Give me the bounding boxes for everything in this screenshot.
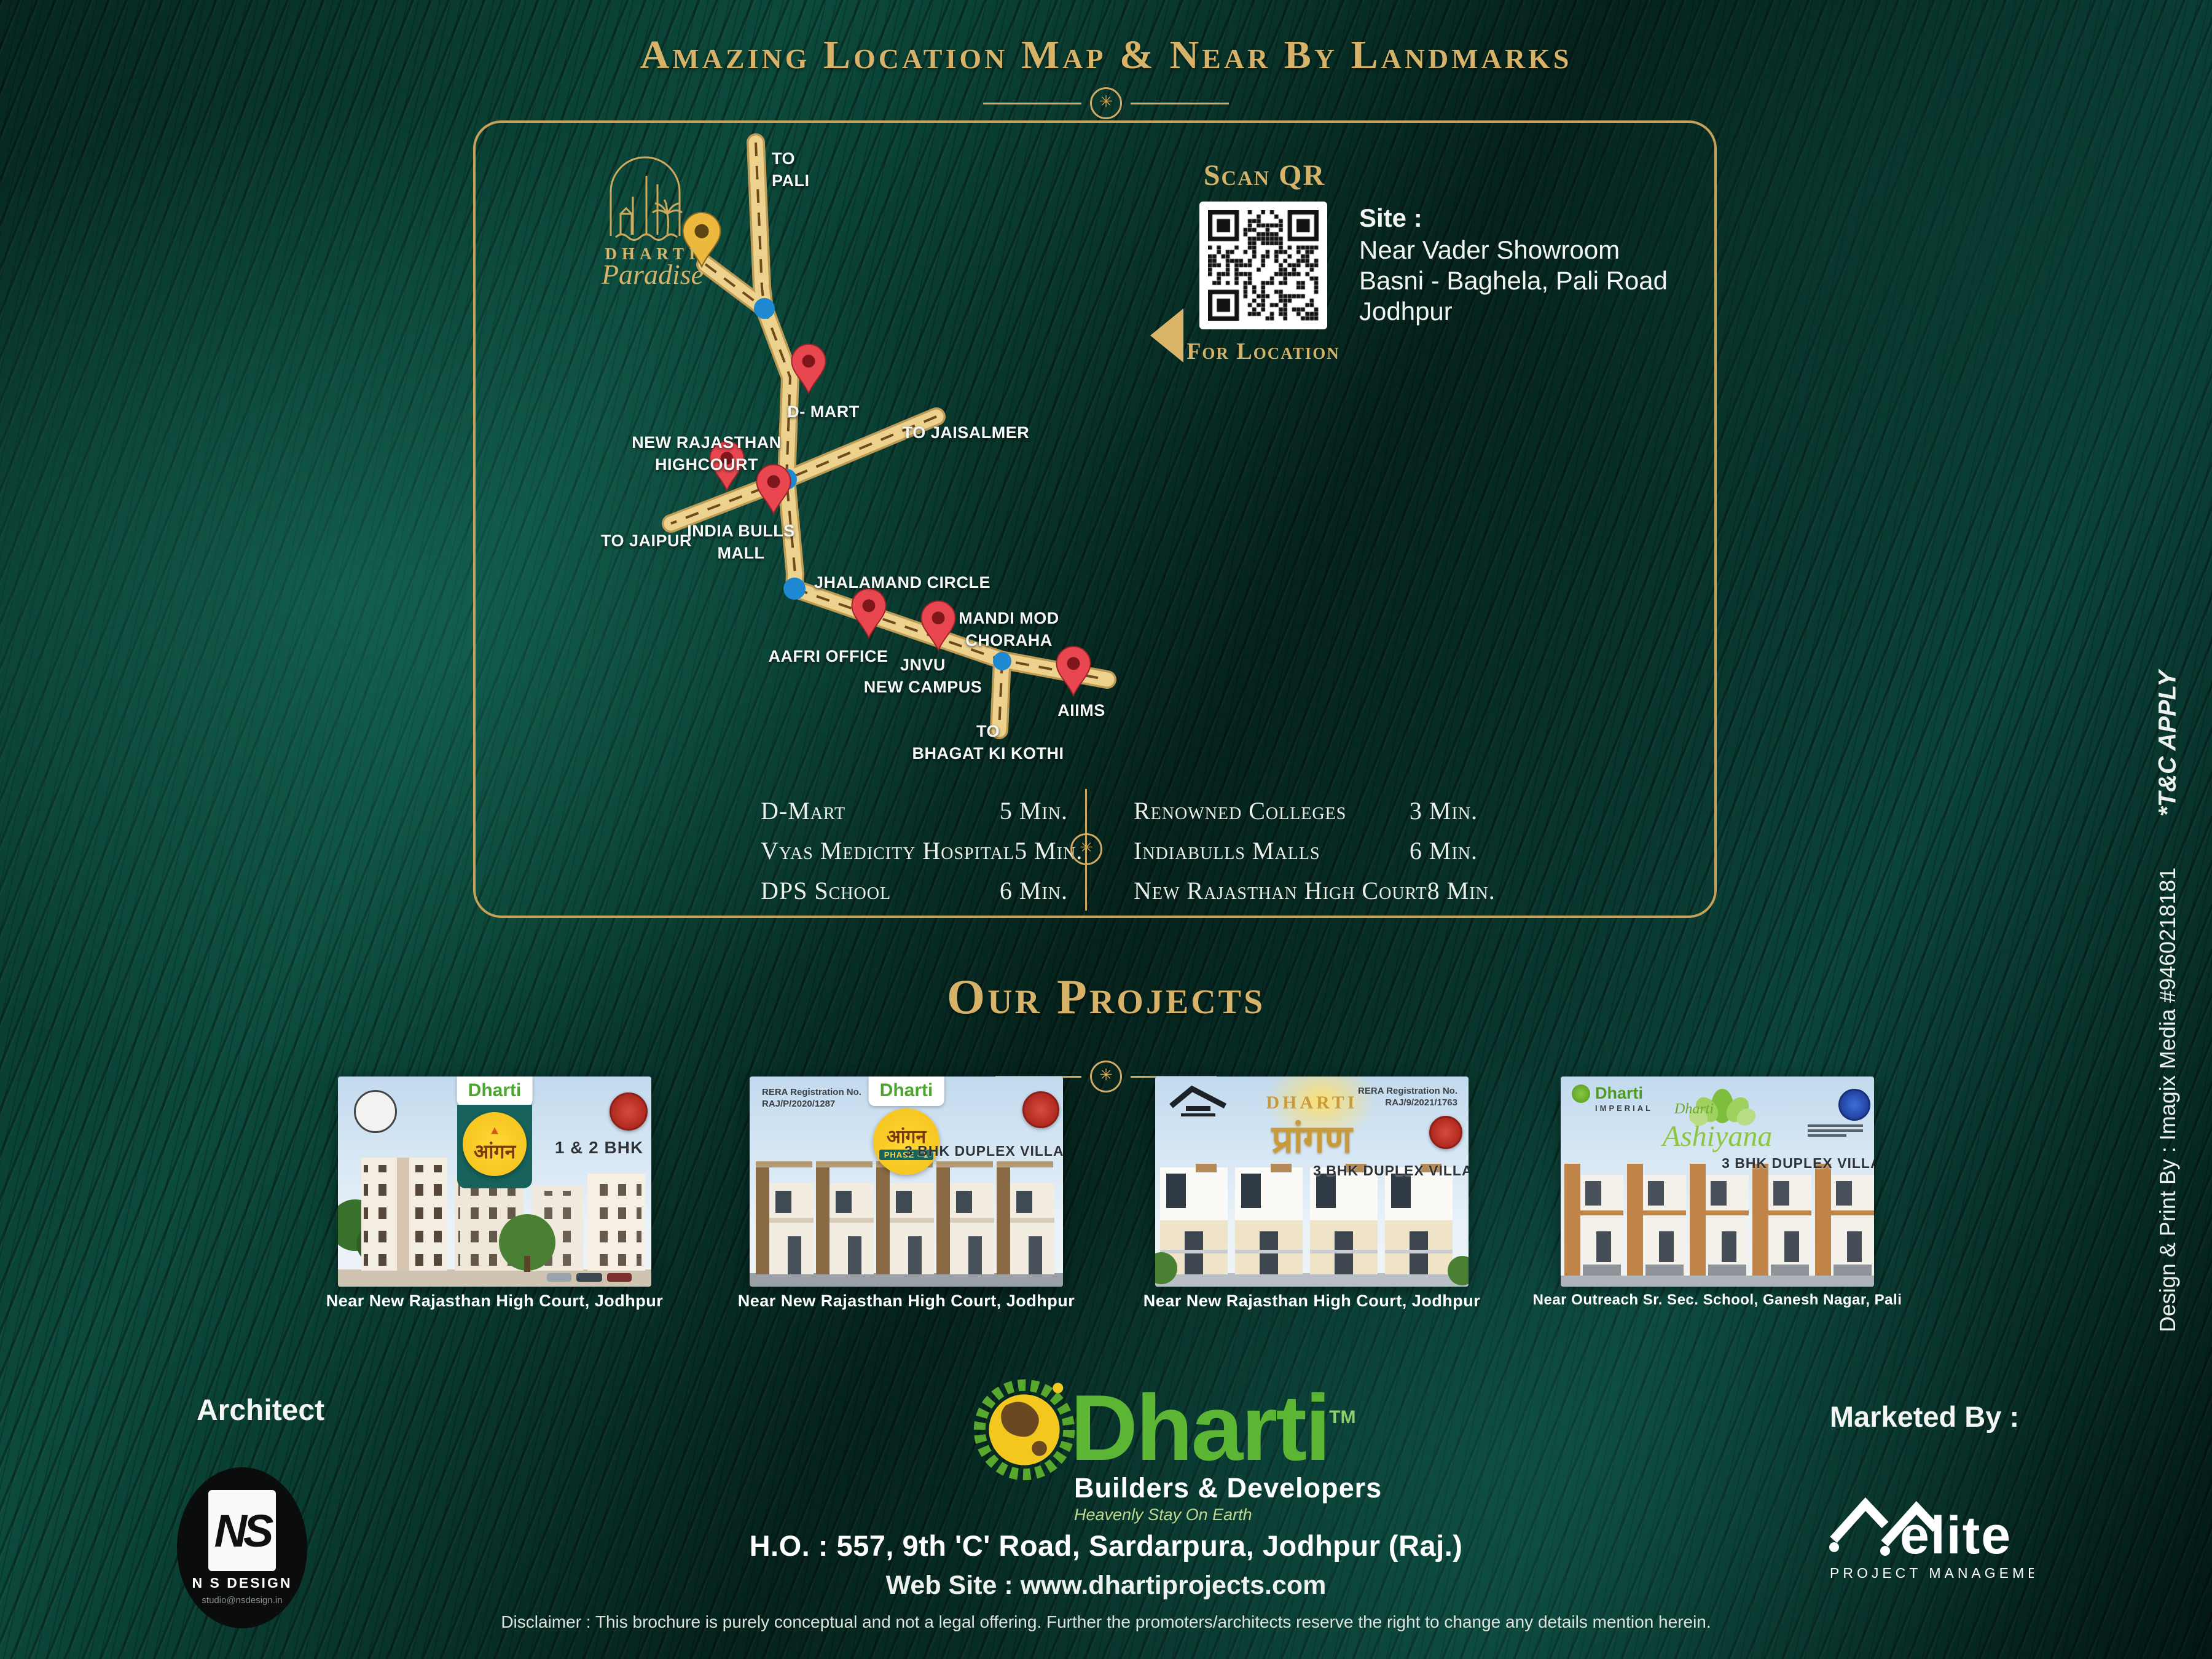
site-line: Near Vader Showroom — [1359, 235, 1668, 265]
project-card-ashiyana: Dharti IMPERIAL Dharti Ashiyana 3 BHK DU… — [1561, 1077, 1874, 1287]
map-label-to-jaisalmer: TO JAISALMER — [903, 422, 1030, 444]
landmark-list-right: Renowned Colleges 3 Min. Indiabulls Mall… — [1134, 796, 1478, 916]
landmark-row: Renowned Colleges 3 Min. — [1134, 796, 1478, 821]
landmark-row: D-Mart 5 Min. — [761, 796, 1068, 821]
card-type: 3 BHK DUPLEX VILLAS — [904, 1143, 1063, 1159]
approval-seal-icon — [354, 1090, 397, 1133]
elite-logo: elite PROJECT MANAGEMENT — [1825, 1480, 2034, 1587]
landmark-time: 3 Min. — [1410, 796, 1478, 821]
tc-apply-note: *T&C APPLY — [2154, 670, 2182, 817]
rera-registration: RERA Registration No. RAJ/P/2020/1287 — [762, 1086, 861, 1110]
star-ornament-icon: ✳ — [1090, 1061, 1122, 1092]
map-label-india-bulls-mall: INDIA BULLS MALL — [687, 520, 795, 564]
ashiyana-brand: Dharti — [1674, 1101, 1714, 1118]
landmark-name: DPS School — [761, 876, 891, 901]
landmark-time: 6 Min. — [1410, 836, 1478, 861]
jda-seal-icon — [610, 1092, 648, 1131]
head-office-address: H.O. : 557, 9th 'C' Road, Sardarpura, Jo… — [750, 1529, 1463, 1563]
card-type: 1 & 2 BHK — [555, 1138, 643, 1158]
dharti-globe-icon — [972, 1378, 1077, 1482]
map-label-bhagat-ki-kothi: TO BHAGAT KI KOTHI — [912, 720, 1064, 764]
card-brand: DHARTI — [1266, 1092, 1358, 1113]
landmark-name: Indiabulls Malls — [1134, 836, 1320, 861]
rera-lines — [1808, 1122, 1863, 1139]
landmark-name: Renowned Colleges — [1134, 796, 1346, 821]
aangan-badge: आंगन PHASE - 1 — [873, 1108, 939, 1175]
brochure-page: Amazing Location Map & Near By Landmarks… — [0, 0, 2212, 1659]
dharti-imperial-logo: Dharti — [1572, 1084, 1643, 1103]
map-label-highcourt: NEW RAJASTHAN HIGHCOURT — [632, 431, 782, 476]
ns-design-logo: NS N S DESIGN studio@nsdesign.in — [177, 1467, 307, 1628]
approval-seal-icon — [1838, 1089, 1870, 1121]
site-heading: Site : — [1359, 203, 1668, 233]
ns-monogram: NS — [208, 1490, 276, 1571]
map-label-aiims: AIIMS — [1057, 699, 1105, 721]
dharti-logo-tagline: Heavenly Stay On Earth — [1074, 1505, 1252, 1524]
elite-sub: PROJECT MANAGEMENT — [1830, 1565, 2034, 1581]
aangan-badge: ▲ आंगन — [463, 1112, 527, 1176]
site-line: Jodhpur — [1359, 296, 1668, 327]
print-credit: Design & Print By : Imagix Media #946021… — [2155, 868, 2181, 1332]
card-caption: Near Outreach Sr. Sec. School, Ganesh Na… — [1533, 1292, 1902, 1309]
jda-seal-icon — [1022, 1091, 1059, 1128]
card-type: 3 BHK DUPLEX VILLAS — [1722, 1155, 1874, 1172]
disclaimer-text: Disclaimer : This brochure is purely con… — [501, 1612, 1711, 1632]
landmark-time: 8 Min. — [1427, 876, 1496, 901]
palm-ornament-icon: ✳ — [1070, 833, 1102, 865]
pin-aafri-office — [852, 589, 885, 638]
projects-heading: Our Projects — [947, 970, 1265, 1026]
elite-wordmark: elite — [1900, 1506, 2012, 1565]
project-card-aangan-villas: RERA Registration No. RAJ/P/2020/1287 Dh… — [750, 1077, 1063, 1287]
site-address-block: Site : Near Vader Showroom Basni - Baghe… — [1359, 203, 1668, 327]
dharti-globe-icon — [1572, 1084, 1590, 1103]
map-label-jnvu: JNVU NEW CAMPUS — [864, 654, 982, 698]
marketed-by-label: Marketed By : — [1830, 1400, 2019, 1433]
landmark-row: Indiabulls Malls 6 Min. — [1134, 836, 1478, 861]
card-caption: Near New Rajasthan High Court, Jodhpur — [1143, 1292, 1481, 1311]
rera-registration: RERA Registration No. RAJ/9/2021/1763 — [1358, 1085, 1457, 1108]
dharti-paradise-logo-icon — [611, 157, 682, 240]
landmark-row: New Rajasthan High Court 8 Min. — [1134, 876, 1478, 901]
card-brand: Dharti — [457, 1077, 533, 1106]
map-label-to-jaipur: TO JAIPUR — [601, 530, 692, 552]
scan-qr-label: Scan QR — [1204, 159, 1325, 192]
builder-logo-icon — [1167, 1085, 1226, 1123]
landmark-list-left: D-Mart 5 Min. Vyas Medicity Hospital 5 M… — [761, 796, 1068, 916]
card-brand: Dharti — [869, 1077, 944, 1106]
imperial-label: IMPERIAL — [1595, 1104, 1653, 1113]
qr-code-canvas — [1208, 210, 1319, 321]
map-label-to-pali: TO PALI — [772, 147, 810, 192]
landmark-name: D-Mart — [761, 796, 845, 821]
landmark-name: Vyas Medicity Hospital — [761, 836, 1014, 861]
project-card-prangan: DHARTI प्रांगण RERA Registration No. RAJ… — [1155, 1077, 1469, 1287]
dharti-logo-wordmark: DhartiTM — [1070, 1371, 1355, 1474]
qr-arrow-icon — [1150, 308, 1183, 363]
arrow-up-icon: ▲ — [488, 1124, 501, 1138]
landmark-row: DPS School 6 Min. — [761, 876, 1068, 901]
landmark-name: New Rajasthan High Court — [1134, 876, 1427, 901]
qr-code — [1199, 202, 1327, 329]
card-caption: Near New Rajasthan High Court, Jodhpur — [738, 1292, 1075, 1311]
paradise-logo-name: Paradise — [602, 258, 704, 291]
map-label-mandi-mod: MANDI MOD CHORAHA — [959, 607, 1059, 651]
card-caption: Near New Rajasthan High Court, Jodhpur — [326, 1292, 664, 1311]
map-label-d-mart: D- MART — [787, 401, 859, 423]
website-link[interactable]: Web Site : www.dhartiprojects.com — [886, 1571, 1327, 1601]
landmark-time: 6 Min. — [1000, 876, 1068, 901]
jda-seal-icon — [1429, 1116, 1462, 1149]
architect-label: Architect — [197, 1394, 324, 1427]
prangan-badge: प्रांगण — [1271, 1112, 1352, 1164]
card-type: 3 BHK DUPLEX VILLAS — [1313, 1163, 1469, 1179]
ashiyana-name: Ashiyana — [1663, 1120, 1773, 1153]
landmark-time: 5 Min. — [1000, 796, 1068, 821]
for-location-label: For Location — [1186, 338, 1340, 365]
landmark-row: Vyas Medicity Hospital 5 Min. — [761, 836, 1068, 861]
site-line: Basni - Baghela, Pali Road — [1359, 265, 1668, 296]
dharti-logo-sub: Builders & Developers — [1074, 1472, 1382, 1504]
map-label-jhalamand-circle: JHALAMAND CIRCLE — [814, 571, 990, 594]
pin-aiims — [1056, 646, 1090, 696]
project-card-aangan: Dharti ▲ आंगन 1 & 2 BHK — [338, 1077, 651, 1287]
